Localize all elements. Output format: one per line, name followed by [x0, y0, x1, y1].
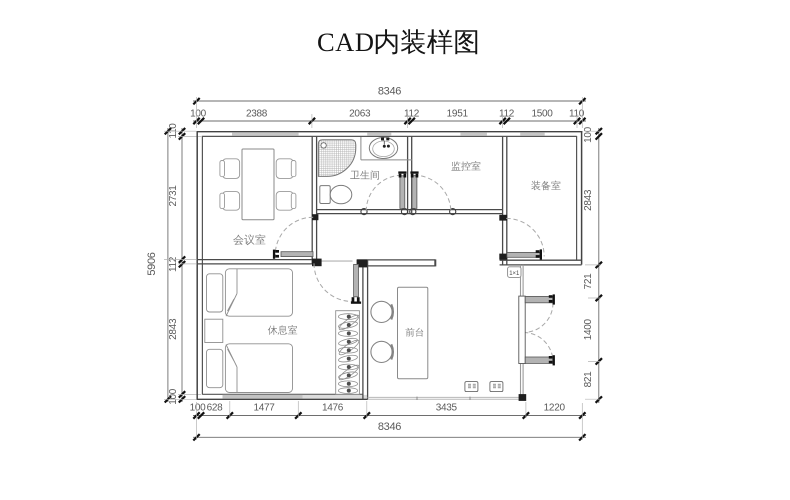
svg-text:100: 100 [583, 126, 594, 143]
svg-text:100: 100 [190, 402, 207, 413]
svg-text:821: 821 [583, 371, 594, 388]
svg-text:2843: 2843 [583, 189, 594, 211]
svg-text:5906: 5906 [146, 252, 158, 275]
svg-text:1476: 1476 [322, 402, 344, 413]
svg-text:110: 110 [168, 123, 179, 139]
svg-text:112: 112 [499, 108, 515, 119]
svg-text:1400: 1400 [583, 318, 594, 340]
svg-text:112: 112 [168, 256, 179, 272]
svg-text:1477: 1477 [253, 402, 275, 413]
svg-text:8346: 8346 [378, 421, 401, 433]
svg-text:8346: 8346 [378, 86, 401, 98]
svg-text:2063: 2063 [349, 108, 371, 119]
svg-text:CAD: CAD [317, 27, 374, 57]
svg-text:112: 112 [404, 108, 420, 119]
svg-text:100: 100 [190, 108, 207, 119]
svg-text:2388: 2388 [246, 108, 268, 119]
svg-text:1×1: 1×1 [509, 271, 520, 277]
svg-text:628: 628 [207, 402, 224, 413]
svg-text:2731: 2731 [168, 185, 179, 207]
svg-text:100: 100 [168, 388, 179, 405]
svg-text:1220: 1220 [544, 402, 566, 413]
svg-text:3435: 3435 [436, 402, 458, 413]
svg-text:2843: 2843 [168, 318, 179, 340]
svg-text:1951: 1951 [447, 108, 469, 119]
svg-text:1500: 1500 [531, 108, 553, 119]
svg-text:721: 721 [583, 273, 594, 290]
